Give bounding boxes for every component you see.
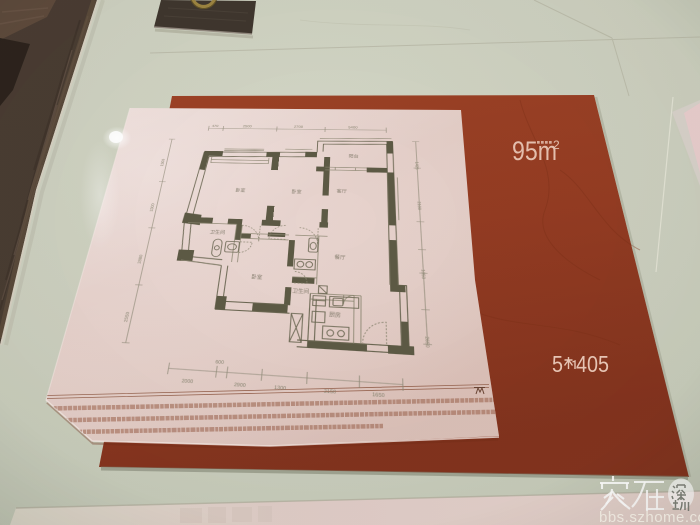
svg-text:bbs.szhome.com: bbs.szhome.com (599, 509, 700, 525)
